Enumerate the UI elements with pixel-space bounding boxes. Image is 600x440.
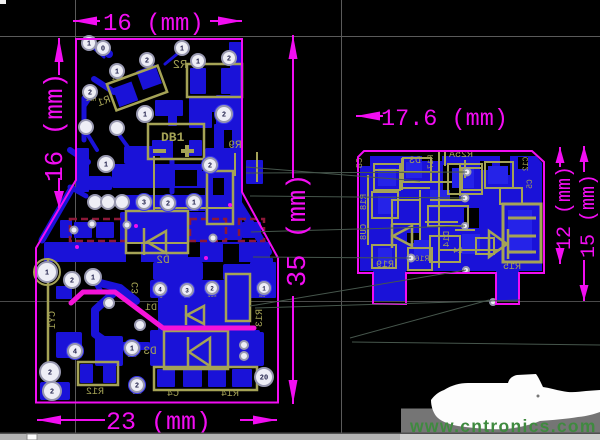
svg-text:1: 1 — [87, 41, 91, 49]
svg-text:R19: R19 — [376, 260, 394, 271]
svg-text:2: 2 — [70, 278, 74, 286]
svg-text:3: 3 — [142, 200, 146, 208]
svg-text:R9: R9 — [228, 140, 241, 152]
svg-text:2: 2 — [166, 201, 170, 209]
svg-text:1: 1 — [143, 112, 147, 120]
svg-text:16 (mm): 16 (mm) — [103, 11, 204, 38]
svg-text:R14: R14 — [221, 389, 239, 400]
svg-text:1: 1 — [192, 200, 196, 208]
svg-text:1: 1 — [130, 346, 134, 354]
svg-text:2: 2 — [210, 286, 214, 293]
svg-text:1: 1 — [45, 270, 49, 278]
svg-text:2: 2 — [135, 383, 139, 391]
svg-text:DB1: DB1 — [161, 130, 185, 145]
svg-text:CY1: CY1 — [48, 311, 59, 329]
svg-text:D2: D2 — [156, 255, 169, 267]
svg-text:2: 2 — [222, 112, 226, 120]
svg-text:D3: D3 — [409, 156, 421, 167]
svg-text:2: 2 — [227, 56, 231, 64]
svg-text:4: 4 — [158, 287, 162, 294]
svg-text:R13: R13 — [255, 309, 266, 327]
svg-text:R4: R4 — [453, 247, 463, 256]
svg-text:C12: C12 — [522, 157, 531, 172]
svg-text:15 (mm): 15 (mm) — [578, 174, 600, 258]
svg-text:D3: D3 — [143, 346, 156, 358]
svg-text:35 (mm): 35 (mm) — [284, 174, 314, 287]
svg-text:4: 4 — [73, 349, 77, 357]
svg-text:0: 0 — [101, 46, 105, 54]
svg-text:C3: C3 — [131, 282, 142, 294]
svg-text:C5: C5 — [526, 179, 535, 189]
svg-text:R16: R16 — [415, 255, 430, 264]
svg-text:12 (mm): 12 (mm) — [554, 166, 577, 250]
svg-text:1: 1 — [262, 286, 266, 293]
svg-text:R2: R2 — [173, 58, 187, 72]
svg-text:1: 1 — [180, 46, 184, 54]
svg-text:1: 1 — [115, 69, 119, 77]
svg-text:3: 3 — [185, 288, 189, 295]
svg-text:C4: C4 — [167, 389, 179, 400]
svg-text:2: 2 — [145, 58, 149, 66]
svg-text:CU8: CU8 — [359, 224, 369, 240]
svg-text:R12: R12 — [86, 387, 104, 398]
svg-text:2: 2 — [208, 163, 212, 171]
svg-text:R18: R18 — [359, 194, 369, 210]
svg-text:2: 2 — [48, 370, 52, 378]
svg-text:1: 1 — [196, 59, 200, 67]
svg-text:16 (mm): 16 (mm) — [40, 73, 70, 182]
svg-text:1: 1 — [91, 275, 95, 283]
svg-text:R15: R15 — [503, 262, 521, 273]
svg-text:20: 20 — [260, 375, 268, 383]
svg-text:17.6 (mm): 17.6 (mm) — [381, 106, 508, 133]
svg-text:R17: R17 — [427, 155, 436, 170]
svg-text:C8: C8 — [355, 158, 365, 169]
svg-text:D1: D1 — [145, 303, 157, 314]
svg-text:2: 2 — [88, 90, 92, 98]
svg-text:1: 1 — [104, 162, 108, 170]
svg-text:2: 2 — [50, 389, 54, 397]
svg-text:D14: D14 — [442, 231, 452, 247]
